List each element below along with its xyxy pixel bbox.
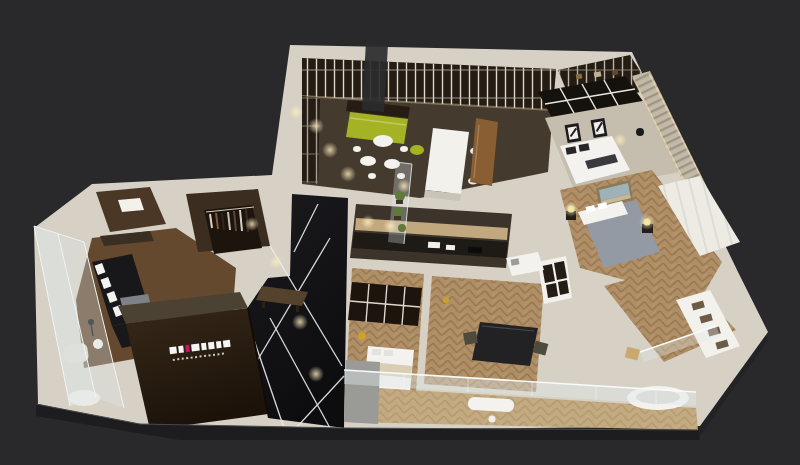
kitchen-sink <box>428 242 440 249</box>
kitchen-sink <box>446 245 455 250</box>
dining-chair <box>400 146 408 152</box>
logo-block <box>223 340 231 348</box>
dark-glass-panel <box>362 42 388 112</box>
downlight-glow <box>340 166 356 182</box>
plant-pot <box>396 200 403 204</box>
pillow <box>372 349 381 355</box>
downlight-glow <box>269 255 283 269</box>
round-table <box>373 135 393 147</box>
downlight-glow <box>289 105 303 119</box>
logo-block <box>178 346 184 354</box>
downlight-glow <box>383 219 397 233</box>
dining-chair <box>353 146 361 152</box>
lamp-glow <box>563 201 579 217</box>
floorplan-render-svg: Bird's-eye 3D render of a modern apartme… <box>0 0 800 465</box>
downlight-glow <box>361 215 375 229</box>
logo-block <box>208 342 215 350</box>
logo-block <box>201 343 207 351</box>
downlight-glow <box>397 179 411 193</box>
window-pane <box>546 283 558 298</box>
bench-leg <box>262 302 265 308</box>
desk-chair <box>463 331 478 345</box>
logo-block <box>169 346 177 354</box>
pillow <box>384 350 393 356</box>
walkin-dresser <box>118 198 144 212</box>
balcony-chaise <box>468 397 515 412</box>
downlight-glow <box>292 314 308 330</box>
brass-lamp <box>443 297 449 303</box>
wall-shelving-left-grid <box>302 96 320 184</box>
cooktop <box>468 247 482 254</box>
logo-block <box>191 344 200 352</box>
logo-wall-front-face <box>126 308 268 430</box>
downlight-glow <box>613 133 627 147</box>
plant <box>398 224 406 232</box>
downlight-glow <box>322 142 338 158</box>
round-table <box>360 156 376 166</box>
bench-leg <box>296 306 299 312</box>
kitchen <box>350 204 512 268</box>
plant <box>393 207 403 217</box>
floor-lamp <box>636 128 644 136</box>
downlight-glow <box>245 217 259 231</box>
lamp-glow <box>639 214 655 230</box>
brass-lamp <box>358 332 366 340</box>
downlight-glow <box>308 366 324 382</box>
screenshot-canvas: Bird's-eye 3D render of a modern apartme… <box>0 0 800 465</box>
balcony-side-table <box>489 416 496 423</box>
plant-pot <box>394 216 401 220</box>
dining-chair <box>368 173 376 179</box>
logo-accent-block <box>185 345 190 352</box>
logo-block <box>216 341 222 349</box>
green-chair <box>410 145 424 155</box>
downlight-glow <box>308 118 324 134</box>
